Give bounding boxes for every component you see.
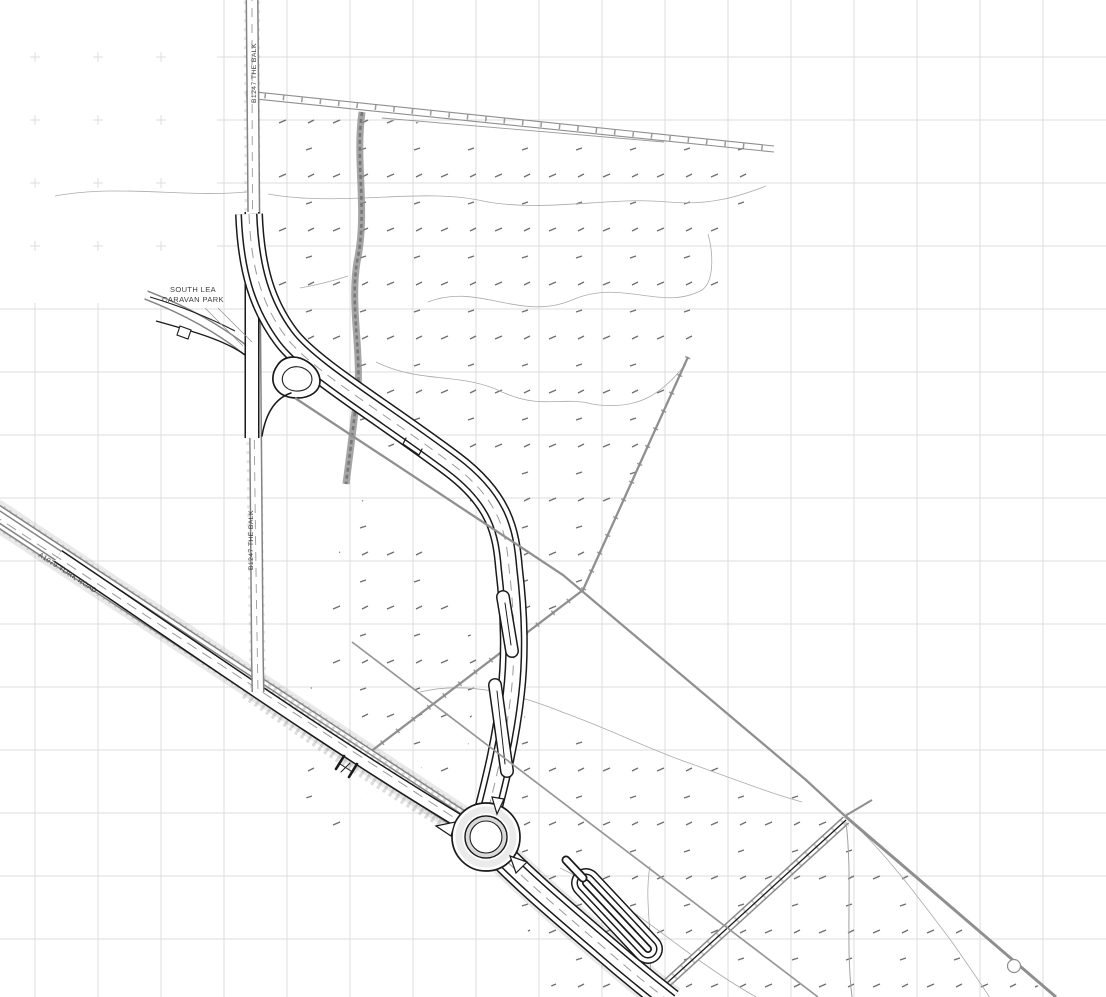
central-island [465,816,507,858]
plan-canvas[interactable]: SOUTH LEA CARAVAN PARK B1247 THE BALK B1… [0,0,1106,997]
field-boundary [845,800,872,816]
label-layer: SOUTH LEA CARAVAN PARK B1247 THE BALK B1… [37,43,258,595]
teardrop-island [262,357,320,436]
stippled-field [496,716,1052,997]
plan-sheet: SOUTH LEA CARAVAN PARK B1247 THE BALK B1… [0,0,1106,997]
building-outline [177,326,191,339]
caravan-park-label: CARAVAN PARK [162,295,224,304]
vegetation-stipple-layer [262,110,1052,997]
layby [503,597,512,651]
road-name-label: B1247 THE BALK [248,510,255,570]
road-name-label: B1247 THE BALK [251,43,258,103]
contour-line [55,191,246,196]
caravan-park-label: SOUTH LEA [170,285,216,294]
pond-symbol [1008,960,1021,973]
